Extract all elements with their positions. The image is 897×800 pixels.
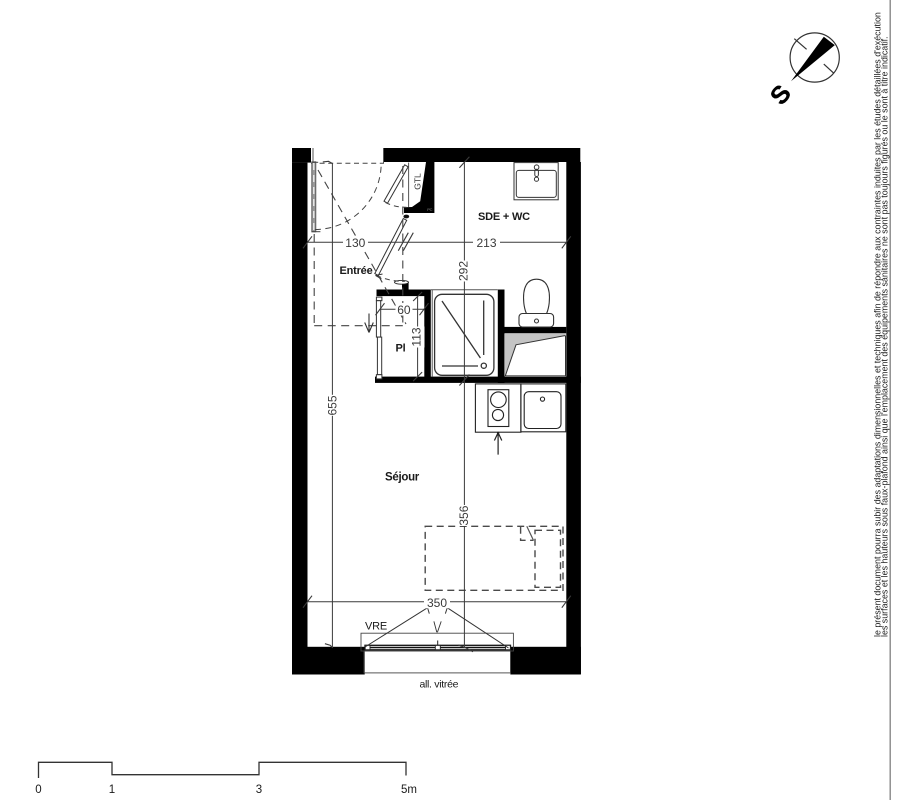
svg-text:Entrée: Entrée <box>339 265 372 277</box>
svg-text:GTL: GTL <box>412 173 422 190</box>
svg-text:Pl: Pl <box>396 342 406 354</box>
svg-text:292: 292 <box>456 261 470 281</box>
svg-text:SDE + WC: SDE + WC <box>478 211 530 223</box>
svg-text:VRE: VRE <box>365 621 387 633</box>
svg-text:all. vitrée: all. vitrée <box>419 679 458 691</box>
svg-text:1: 1 <box>109 784 115 796</box>
svg-text:5m: 5m <box>401 784 417 796</box>
svg-text:350: 350 <box>427 596 447 610</box>
svg-text:655: 655 <box>326 395 340 415</box>
svg-text:130: 130 <box>345 236 365 250</box>
svg-text:60: 60 <box>397 303 411 317</box>
svg-text:PC: PC <box>427 207 432 212</box>
svg-text:213: 213 <box>476 236 496 250</box>
svg-text:Séjour: Séjour <box>385 471 420 483</box>
svg-text:113: 113 <box>409 327 423 346</box>
svg-text:les surfaces et les hauteurs s: les surfaces et les hauteurs sous faux-p… <box>880 36 890 637</box>
svg-text:356: 356 <box>457 505 471 525</box>
svg-text:3: 3 <box>256 784 262 796</box>
svg-text:0: 0 <box>35 784 41 796</box>
